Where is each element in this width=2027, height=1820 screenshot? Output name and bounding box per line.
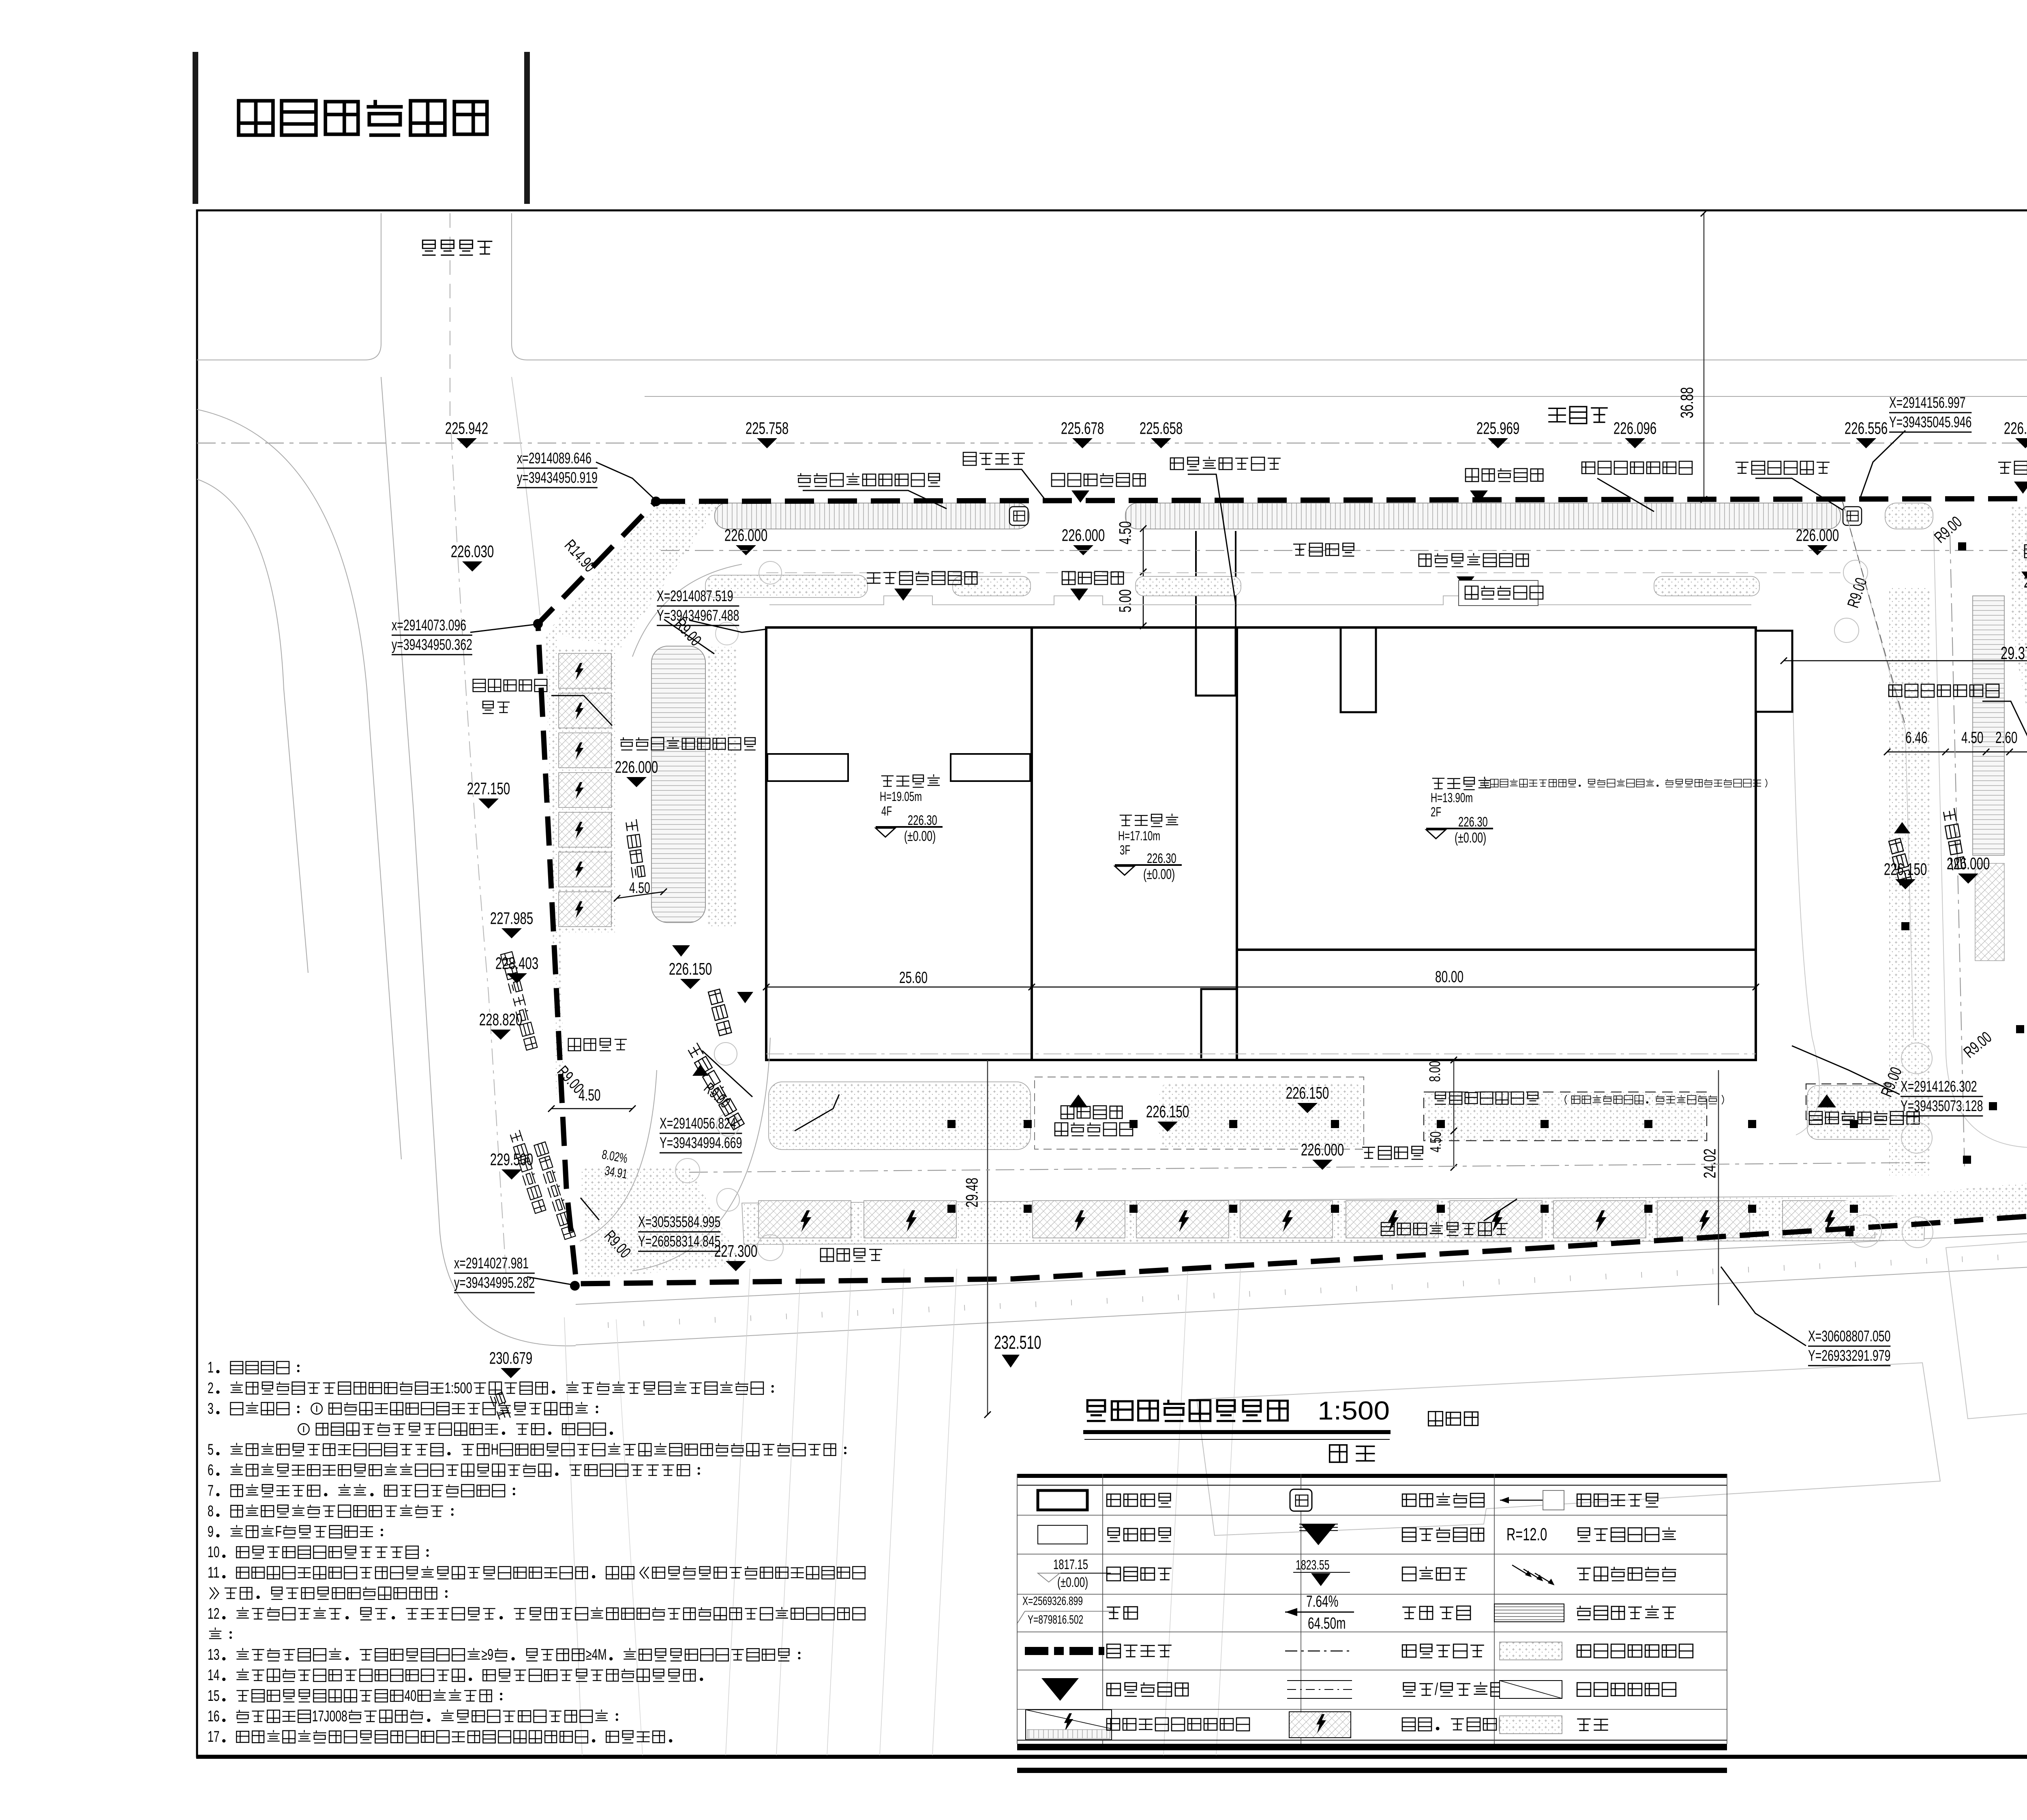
svg-text:225.942: 225.942 [445,418,488,437]
svg-text:17: 17 [208,1728,220,1745]
svg-text:226.000: 226.000 [615,757,658,776]
svg-text:3F: 3F [1120,843,1130,857]
svg-text:226.150: 226.150 [669,959,712,978]
svg-text:15: 15 [208,1687,220,1704]
svg-text:X=2569326.899: X=2569326.899 [1022,1595,1083,1608]
svg-text:2.60: 2.60 [1995,729,2018,747]
svg-text:227.150: 227.150 [467,779,510,798]
svg-text:x=2914073.096: x=2914073.096 [392,617,466,634]
svg-text:36.88: 36.88 [1677,387,1697,418]
svg-text:y=39434950.919: y=39434950.919 [517,469,598,486]
svg-text:80.00: 80.00 [1435,968,1463,986]
svg-text:X=2914126.302: X=2914126.302 [1901,1078,1977,1095]
svg-text:9: 9 [208,1523,214,1540]
svg-text:5: 5 [208,1441,214,1458]
svg-text:1:500: 1:500 [445,1380,472,1397]
svg-text:227.985: 227.985 [490,908,533,927]
svg-text:X=30535584.995: X=30535584.995 [638,1214,720,1231]
svg-text:12: 12 [208,1605,220,1622]
svg-text:2F: 2F [1431,805,1441,819]
svg-text:H=17.10m: H=17.10m [1118,829,1160,843]
svg-text:/: / [1435,1679,1438,1698]
svg-text:Y=26933291.979: Y=26933291.979 [1808,1347,1890,1364]
svg-text:5.00: 5.00 [1115,589,1134,612]
svg-text:Y=39435045.946: Y=39435045.946 [1889,414,1971,431]
svg-text:H: H [491,1441,499,1458]
svg-text:X=30608807.050: X=30608807.050 [1808,1328,1890,1345]
svg-text:226.096: 226.096 [1613,418,1656,437]
svg-text:≥9: ≥9 [482,1647,493,1664]
svg-text:225.969: 225.969 [1476,418,1519,437]
svg-text:226.030: 226.030 [451,542,494,561]
svg-text:R=12.0: R=12.0 [1506,1525,1547,1544]
svg-text:X=2914056.824: X=2914056.824 [660,1115,736,1132]
svg-text:y=39434995.282: y=39434995.282 [454,1274,535,1291]
svg-text:4F: 4F [881,804,892,818]
svg-text:25.60: 25.60 [899,969,928,987]
svg-text:226.758: 226.758 [2004,418,2027,437]
svg-text:13: 13 [208,1647,220,1664]
svg-text:1: 1 [208,1359,214,1376]
svg-text:7.64%: 7.64% [1306,1593,1338,1610]
svg-text:(±0.00): (±0.00) [1455,830,1486,846]
svg-text:225.758: 225.758 [746,418,789,437]
svg-text:7: 7 [208,1482,214,1499]
svg-text:3: 3 [208,1400,214,1417]
svg-text:226.000: 226.000 [1062,525,1105,544]
svg-text:17J008: 17J008 [312,1708,347,1725]
svg-text:X=2914156.997: X=2914156.997 [1889,394,1966,411]
svg-text:4.50: 4.50 [1961,729,1984,747]
svg-text:y=39434950.362: y=39434950.362 [392,636,472,653]
svg-text:1817.15: 1817.15 [1053,1557,1088,1572]
svg-text:24.02: 24.02 [1700,1148,1719,1178]
svg-text:H=19.05m: H=19.05m [880,789,922,804]
svg-text:x=2914027.981: x=2914027.981 [454,1255,529,1272]
svg-text:29.37: 29.37 [2001,643,2027,663]
svg-text:8.00: 8.00 [1427,1061,1444,1082]
svg-text:226.000: 226.000 [1796,525,1839,544]
svg-text:(±0.00): (±0.00) [904,829,936,844]
svg-text:2: 2 [208,1380,214,1397]
svg-text:226.556: 226.556 [1845,418,1888,437]
svg-text:226.000: 226.000 [724,525,767,544]
svg-text:Y=39434994.669: Y=39434994.669 [660,1135,742,1152]
svg-text:1823.55: 1823.55 [1296,1557,1330,1572]
svg-text:226.000: 226.000 [1301,1140,1344,1159]
svg-text:≥4M: ≥4M [586,1647,607,1664]
svg-text:x=2914089.646: x=2914089.646 [517,450,591,467]
svg-text:14: 14 [208,1667,220,1684]
svg-text:4.50: 4.50 [1427,1131,1444,1152]
svg-text:16: 16 [208,1708,220,1725]
svg-text:226.30: 226.30 [1458,814,1488,830]
svg-text:226.150: 226.150 [1146,1102,1189,1121]
svg-text:X=2914087.519: X=2914087.519 [657,588,733,605]
svg-text:F: F [275,1523,282,1540]
svg-text:6: 6 [208,1462,214,1479]
svg-text:6.46: 6.46 [1905,729,1928,747]
svg-text:40: 40 [405,1687,417,1704]
svg-text:Y=879816.502: Y=879816.502 [1028,1613,1083,1627]
svg-text:225.658: 225.658 [1140,418,1183,437]
svg-text:4.50: 4.50 [1115,521,1134,544]
svg-text:Y=26858314.845: Y=26858314.845 [638,1233,720,1250]
svg-text:230.679: 230.679 [489,1348,532,1367]
svg-text:226.30: 226.30 [1147,851,1176,866]
svg-text:4.50: 4.50 [579,1086,601,1104]
svg-text:226.150: 226.150 [1286,1083,1329,1102]
svg-text:(±0.00): (±0.00) [1057,1575,1088,1590]
svg-text:227.300: 227.300 [714,1241,757,1260]
svg-text:226.30: 226.30 [908,813,937,828]
svg-text:11: 11 [208,1564,220,1581]
svg-text:29.48: 29.48 [962,1178,981,1208]
svg-text:(±0.00): (±0.00) [1143,867,1175,882]
svg-text:8: 8 [208,1503,214,1520]
svg-text:1:500: 1:500 [1318,1396,1390,1425]
svg-text:64.50m: 64.50m [1308,1614,1346,1632]
svg-text:10: 10 [208,1544,220,1561]
svg-text:232.510: 232.510 [994,1332,1041,1353]
svg-text:225.678: 225.678 [1061,418,1104,437]
svg-text:H=13.90m: H=13.90m [1431,790,1473,805]
